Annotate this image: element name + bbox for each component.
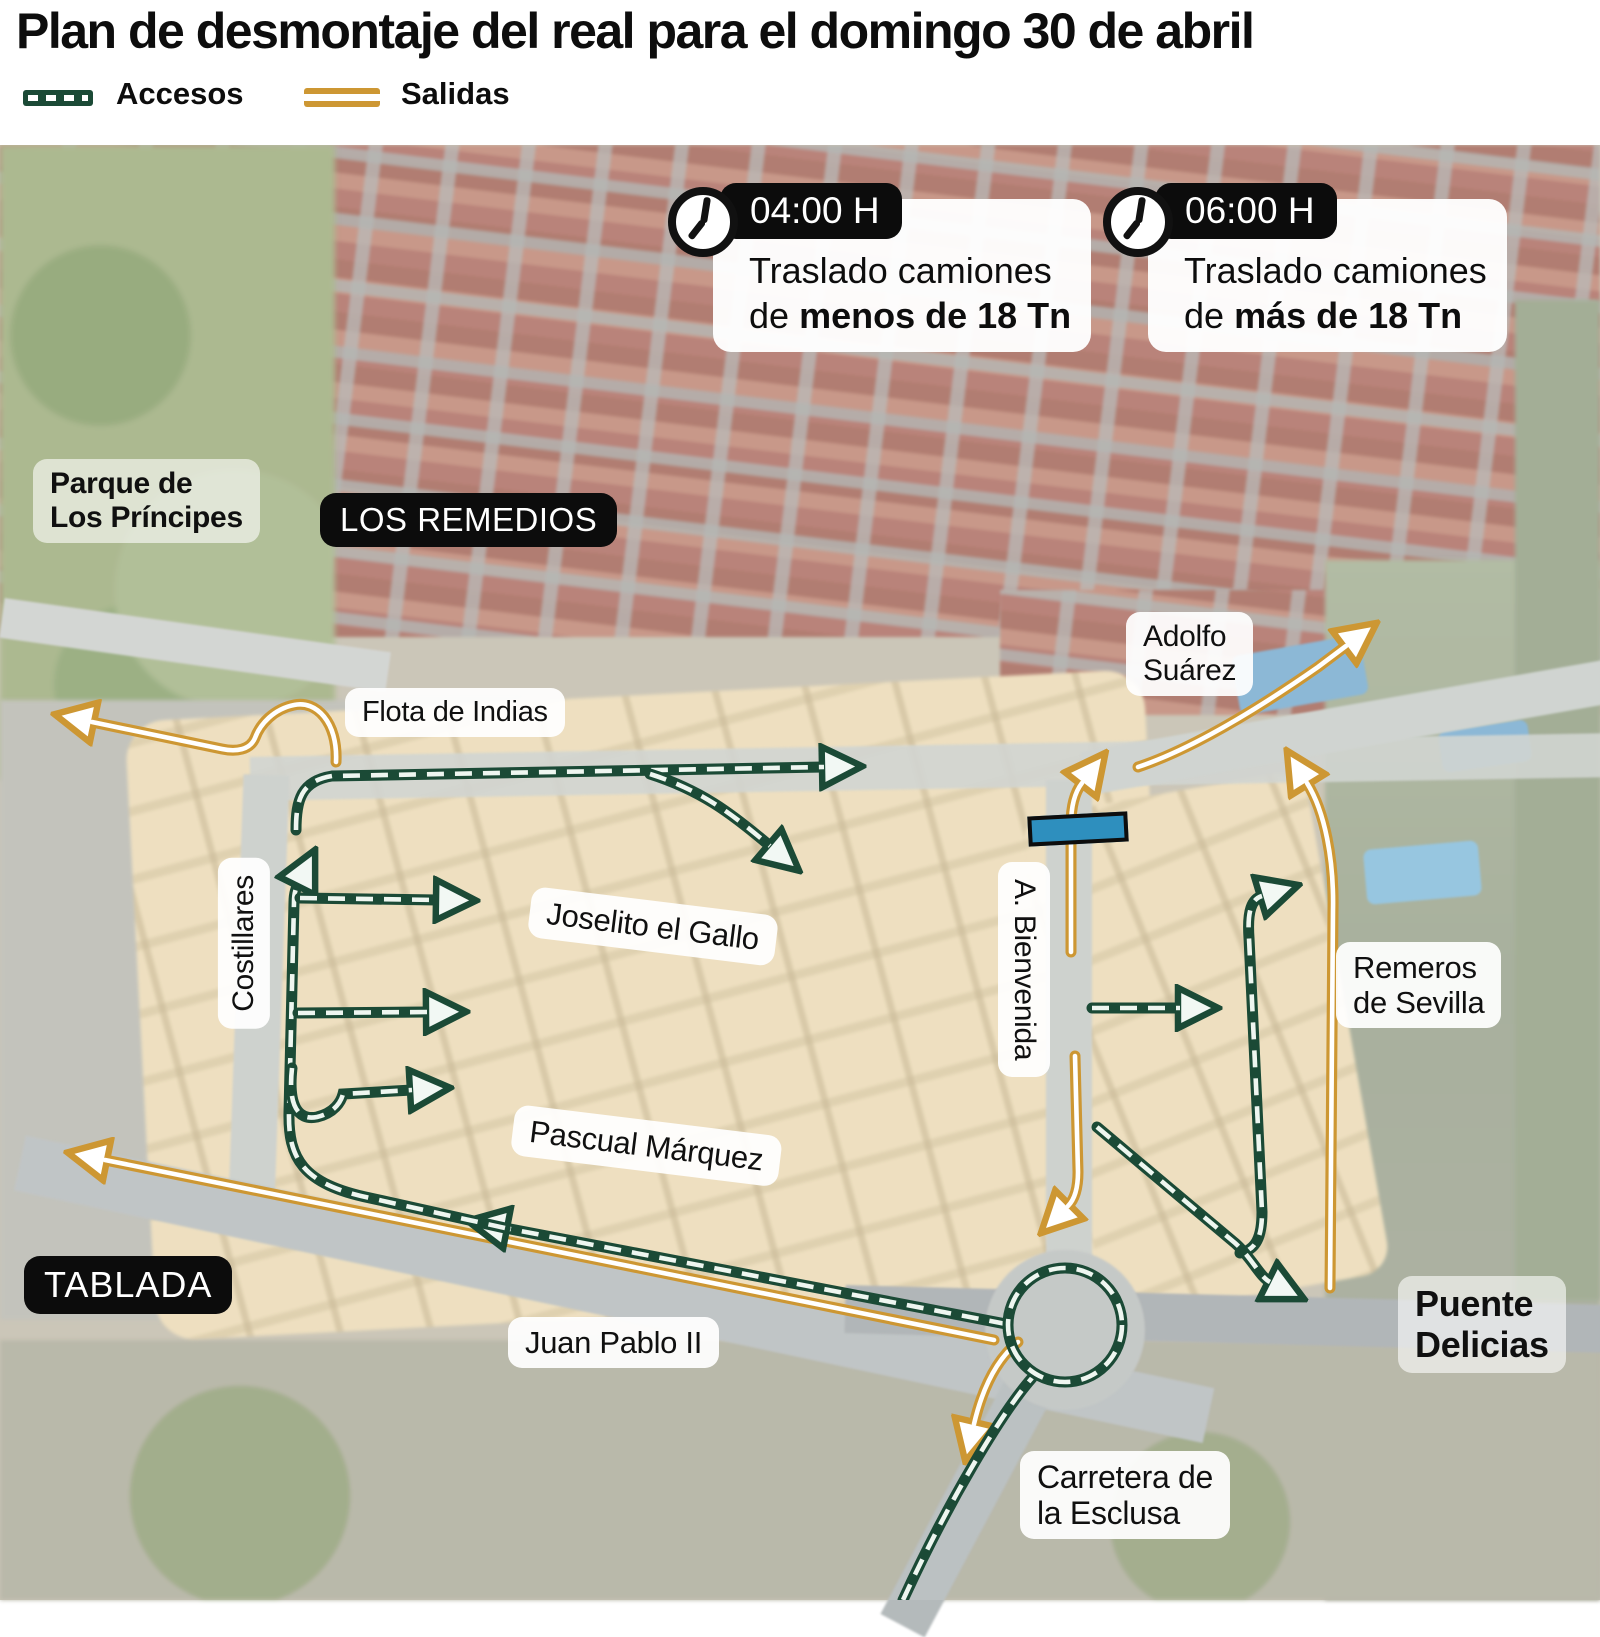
accesos-line-swatch — [23, 90, 93, 106]
accesos-route-east-diagonal — [1097, 1127, 1270, 1282]
legend-accesos-label: Accesos — [116, 76, 244, 112]
label-puente-delicias: Puente Delicias — [1398, 1276, 1566, 1373]
callout-6am-time-badge: 06:00 H — [1155, 183, 1337, 239]
accesos-branch-1 — [300, 898, 438, 900]
label-costillares: Costillares — [218, 858, 270, 1029]
accesos-branch-2 — [298, 1012, 428, 1013]
callout-6am-line2: de más de 18 Tn — [1184, 294, 1487, 339]
accesos-branch-3 — [291, 1068, 412, 1118]
salidas-route-northwest — [92, 704, 336, 762]
callout-4am-time-badge: 04:00 H — [720, 183, 902, 239]
clock-icon — [1103, 187, 1173, 257]
label-adolfo-suarez: Adolfo Suárez — [1126, 612, 1253, 696]
label-carretera-esclusa: Carretera de la Esclusa — [1020, 1451, 1230, 1539]
label-juan-pablo-ii: Juan Pablo II — [508, 1317, 719, 1368]
legend-salidas-label: Salidas — [401, 76, 510, 112]
page-title: Plan de desmontaje del real para el domi… — [16, 2, 1253, 60]
clock-icon — [668, 187, 738, 257]
accesos-route-costillares — [289, 884, 505, 1228]
header: Plan de desmontaje del real para el domi… — [0, 0, 1600, 145]
label-los-remedios: LOS REMEDIOS — [320, 493, 617, 547]
callout-4am-line2: de menos de 18 Tn — [749, 294, 1071, 339]
accesos-route-flota-branch — [650, 774, 770, 846]
label-tablada: TABLADA — [24, 1256, 232, 1314]
accesos-route-juan-pablo — [505, 1228, 1006, 1324]
salidas-route-remeros-north — [1307, 783, 1333, 1288]
road-closure-marker — [1027, 811, 1128, 846]
callout-6am-line1: Traslado camiones — [1184, 249, 1487, 294]
salidas-line-swatch — [304, 88, 380, 107]
label-a-bienvenida: A. Bienvenida — [998, 862, 1050, 1077]
salidas-route-bienvenida-north — [1071, 783, 1082, 952]
callout-4am-line1: Traslado camiones — [749, 249, 1071, 294]
accesos-route-east-vertical — [1240, 896, 1262, 1253]
salidas-route-bienvenida-south — [1068, 1056, 1078, 1206]
accesos-route-esclusa — [903, 1268, 1122, 1600]
label-parque-los-principes: Parque de Los Príncipes — [33, 459, 260, 543]
salidas-route-juan-pablo-west — [105, 1160, 994, 1340]
label-remeros-de-sevilla: Remeros de Sevilla — [1336, 942, 1501, 1028]
label-flota-de-indias: Flota de Indias — [345, 688, 565, 737]
